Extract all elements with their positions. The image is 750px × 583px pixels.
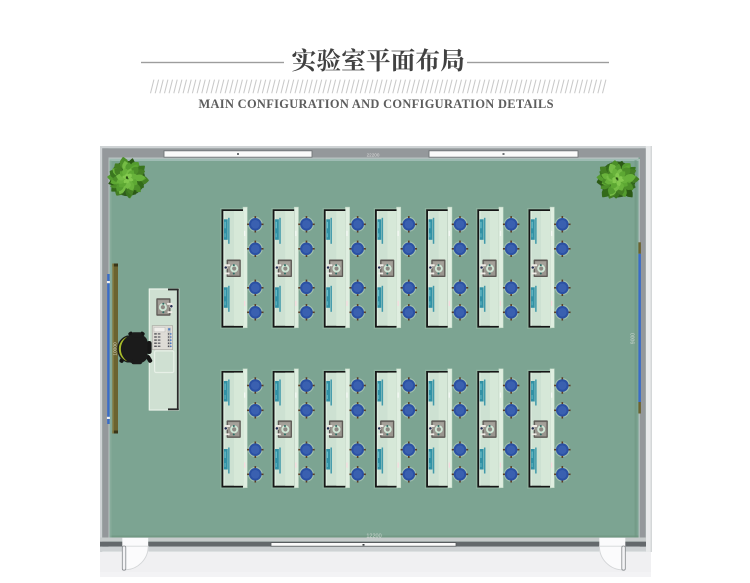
svg-text:12200: 12200 (366, 534, 381, 540)
svg-text:9000: 9000 (631, 333, 637, 344)
svg-text:MAIN CONFIGURATION AND CONFIGU: MAIN CONFIGURATION AND CONFIGURATION DET… (199, 97, 554, 111)
svg-text:22200: 22200 (367, 152, 380, 157)
